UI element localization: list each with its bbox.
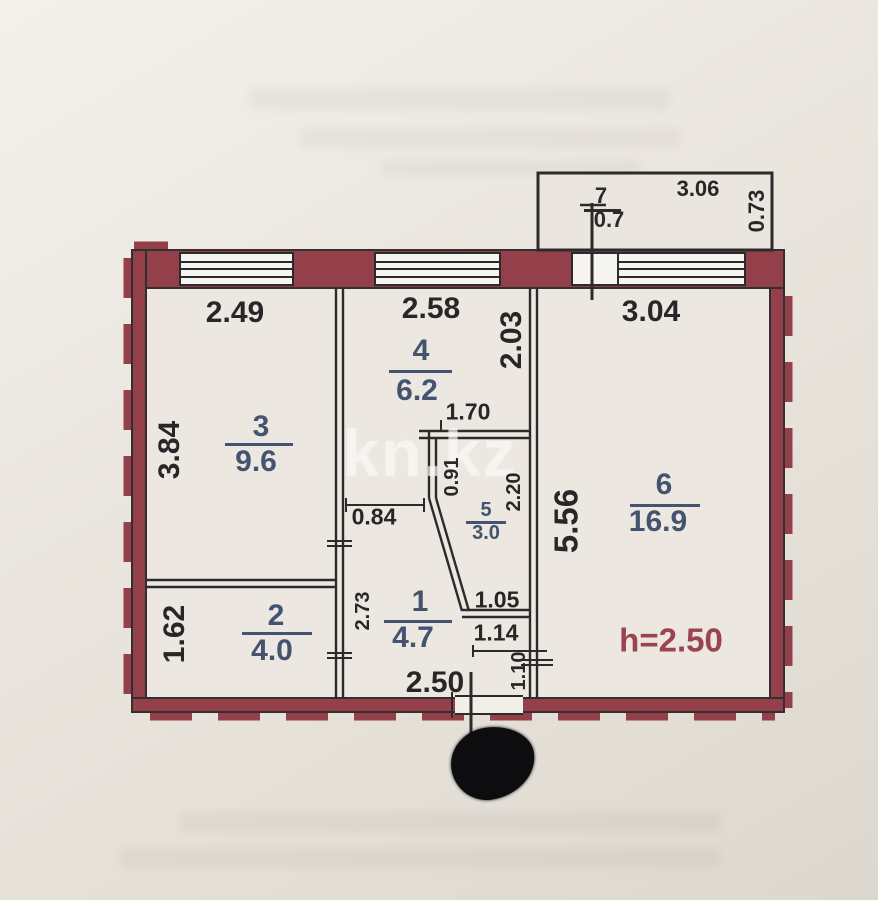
room-4-fraction-line [389, 370, 452, 373]
dim-top-room6: 3.04 [622, 297, 680, 327]
room-7-area: 0.7 [594, 209, 625, 231]
dim-room4-depth: 2.03 [497, 311, 527, 369]
dim-balcony-depth: 0.73 [746, 190, 768, 233]
dim-bath-091: 0.91 [442, 458, 462, 497]
dim-hall-273: 2.73 [353, 592, 373, 631]
dim-balcony-width: 3.06 [677, 178, 720, 200]
dim-hall-114: 1.14 [474, 622, 519, 645]
room-3-number: 3 [253, 412, 270, 442]
dim-entry-250: 2.50 [406, 668, 464, 698]
labels-layer: 39.624.046.214.753.0616.970.72.492.582.0… [0, 0, 878, 900]
room-6-number: 6 [656, 470, 673, 500]
room-7-number: 7 [595, 185, 607, 207]
room-5-number: 5 [480, 500, 491, 520]
dim-hall-105: 1.05 [475, 589, 520, 612]
room-1-area: 4.7 [392, 623, 434, 653]
room-2-area: 4.0 [251, 636, 293, 666]
dim-bath-220: 2.20 [504, 473, 524, 512]
dim-bath-width: 1.70 [446, 401, 491, 424]
dim-hall-110: 1.10 [509, 652, 529, 691]
ceiling-height-note: h=2.50 [619, 624, 723, 657]
floor-plan-scan: kn.kz 39.624.046.214.753.0616.970.72.492… [0, 0, 878, 900]
room-6-area: 16.9 [629, 507, 687, 537]
room-3-area: 9.6 [235, 447, 277, 477]
room-5-area: 3.0 [472, 523, 500, 543]
room-1-number: 1 [412, 587, 429, 617]
dim-top-room4: 2.58 [402, 294, 460, 324]
dim-top-room3: 2.49 [206, 298, 264, 328]
dim-room3-depth: 3.84 [155, 421, 185, 479]
dim-room6-depth: 5.56 [550, 489, 583, 553]
room-4-number: 4 [413, 336, 430, 366]
room-2-number: 2 [268, 601, 285, 631]
dim-room2-depth: 1.62 [160, 605, 190, 663]
dim-door-084: 0.84 [352, 506, 397, 529]
room-4-area: 6.2 [396, 376, 438, 406]
